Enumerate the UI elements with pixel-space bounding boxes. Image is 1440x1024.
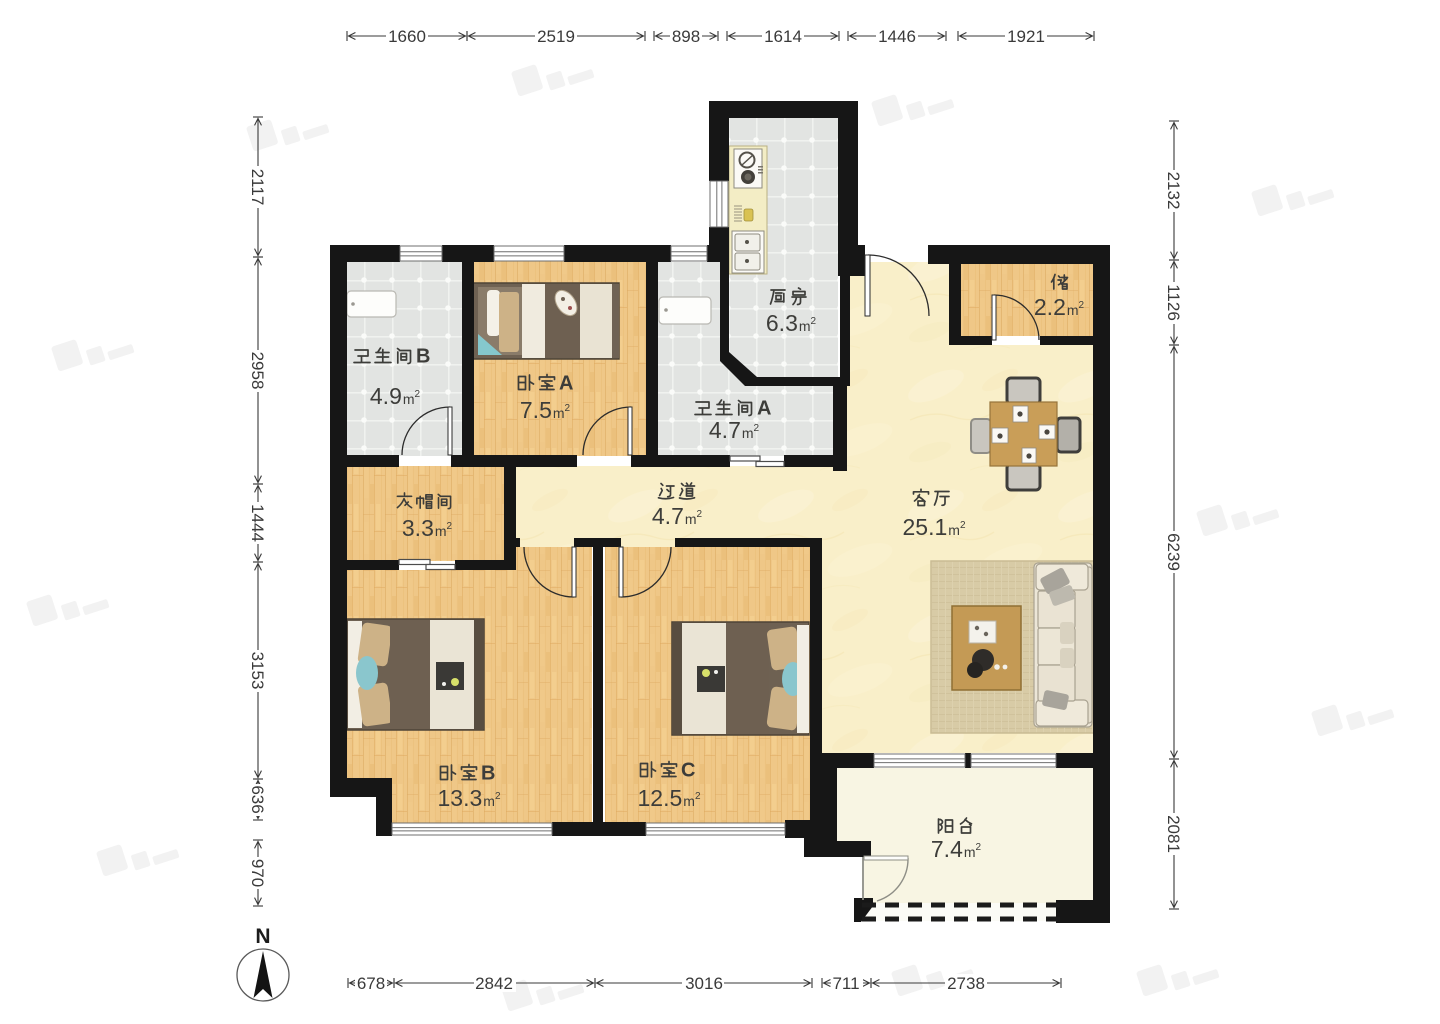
svg-text:1446: 1446 <box>878 27 916 46</box>
svg-text:A: A <box>757 398 771 420</box>
svg-text:2117: 2117 <box>248 169 267 206</box>
svg-text:B: B <box>481 763 495 785</box>
svg-text:3153: 3153 <box>248 652 267 690</box>
svg-text:2842: 2842 <box>475 974 513 993</box>
svg-text:636: 636 <box>248 785 267 813</box>
svg-text:1921: 1921 <box>1007 27 1045 46</box>
svg-text:C: C <box>681 760 695 782</box>
svg-text:2958: 2958 <box>248 352 267 390</box>
svg-text:711: 711 <box>832 974 859 993</box>
svg-text:1126: 1126 <box>1164 284 1183 321</box>
svg-text:970: 970 <box>248 859 267 887</box>
svg-text:N: N <box>255 925 270 948</box>
svg-text:2738: 2738 <box>947 974 985 993</box>
svg-text:6239: 6239 <box>1164 533 1183 571</box>
svg-text:B: B <box>416 346 430 368</box>
svg-text:3016: 3016 <box>685 974 723 993</box>
svg-text:1614: 1614 <box>764 27 802 46</box>
svg-text:898: 898 <box>672 27 700 46</box>
svg-text:1660: 1660 <box>388 27 426 46</box>
svg-text:678: 678 <box>357 974 385 993</box>
svg-text:2132: 2132 <box>1164 172 1183 210</box>
svg-text:A: A <box>559 373 573 395</box>
svg-text:1444: 1444 <box>248 504 267 542</box>
svg-text:2081: 2081 <box>1164 815 1183 853</box>
svg-text:2519: 2519 <box>537 27 575 46</box>
